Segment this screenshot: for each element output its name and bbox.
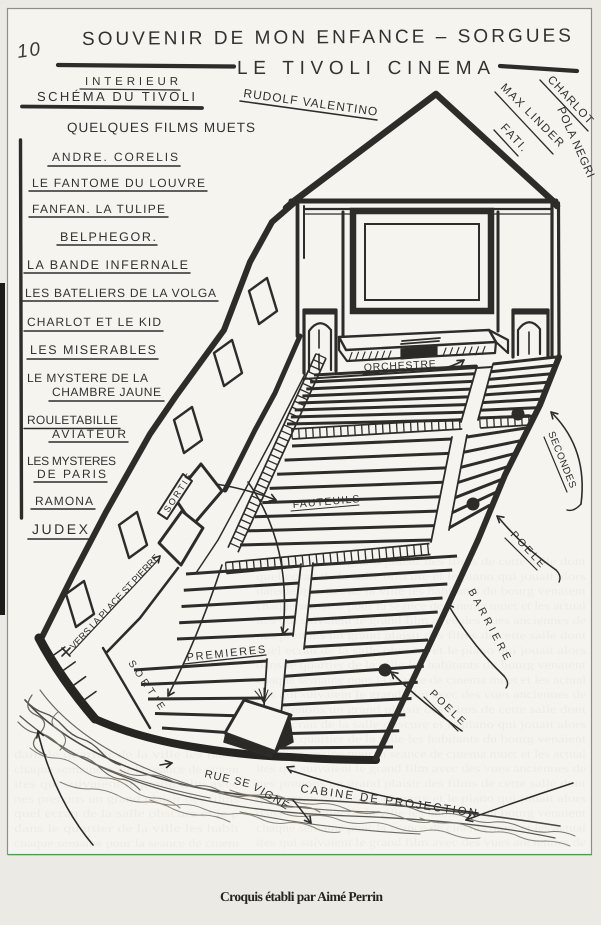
svg-text:SCHÉMA DU TIVOLI: SCHÉMA DU TIVOLI: [37, 89, 195, 104]
svg-text:chaque semaine pour la seance: chaque semaine pour la seance de cinema …: [256, 600, 586, 612]
svg-text:dans le quartier de la ville l: dans le quartier de la ville les habit: [14, 823, 240, 835]
svg-text:nes prenons un grand plaisir d: nes prenons un grand plaisir des films d…: [256, 704, 587, 716]
svg-text:LE FANTOME DU LOUVRE: LE FANTOME DU LOUVRE: [32, 176, 205, 190]
svg-text:LES MISERABLES: LES MISERABLES: [30, 343, 156, 357]
svg-text:quel ecran de la salle obscure: quel ecran de la salle obscure et le pia…: [256, 719, 587, 731]
svg-text:ites qui suivaient le grand fi: ites qui suivaient le grand film avec de…: [256, 763, 586, 775]
svg-text:LA BANDE INFERNALE: LA BANDE INFERNALE: [27, 258, 188, 272]
svg-text:ites qui suivaient le grand fi: ites qui suivaient le grand film avec de…: [256, 837, 586, 849]
svg-text:DE PARIS: DE PARIS: [37, 467, 106, 481]
svg-text:FANFAN. LA TULIPE: FANFAN. LA TULIPE: [32, 202, 165, 216]
svg-text:INTERIEUR: INTERIEUR: [85, 76, 178, 88]
svg-text:CHARLOT ET LE KID: CHARLOT ET LE KID: [27, 315, 161, 329]
svg-text:10: 10: [16, 39, 42, 63]
svg-text:SOUVENIR DE MON ENFANCE – SORG: SOUVENIR DE MON ENFANCE – SORGUES: [82, 26, 571, 50]
svg-text:dans le quartier de la ville l: dans le quartier de la ville les habitan…: [256, 734, 587, 746]
svg-text:Croquis établi par Aimé Perrin: Croquis établi par Aimé Perrin: [220, 889, 383, 904]
svg-text:ROULETABILLE: ROULETABILLE: [27, 413, 118, 427]
svg-text:chaque semaine pour la seance: chaque semaine pour la seance de cinem: [14, 838, 239, 850]
svg-text:LES MYSTERES: LES MYSTERES: [27, 454, 116, 468]
svg-text:LE MYSTERE DE LA: LE MYSTERE DE LA: [27, 371, 148, 385]
svg-text:QUELQUES FILMS MUETS: QUELQUES FILMS MUETS: [67, 120, 255, 135]
svg-text:LES BATELIERS DE LA VOLGA: LES BATELIERS DE LA VOLGA: [25, 286, 216, 300]
svg-text:dans le quartier de la ville l: dans le quartier de la ville les habitan…: [256, 586, 587, 598]
svg-text:CHAMBRE JAUNE: CHAMBRE JAUNE: [52, 385, 161, 399]
